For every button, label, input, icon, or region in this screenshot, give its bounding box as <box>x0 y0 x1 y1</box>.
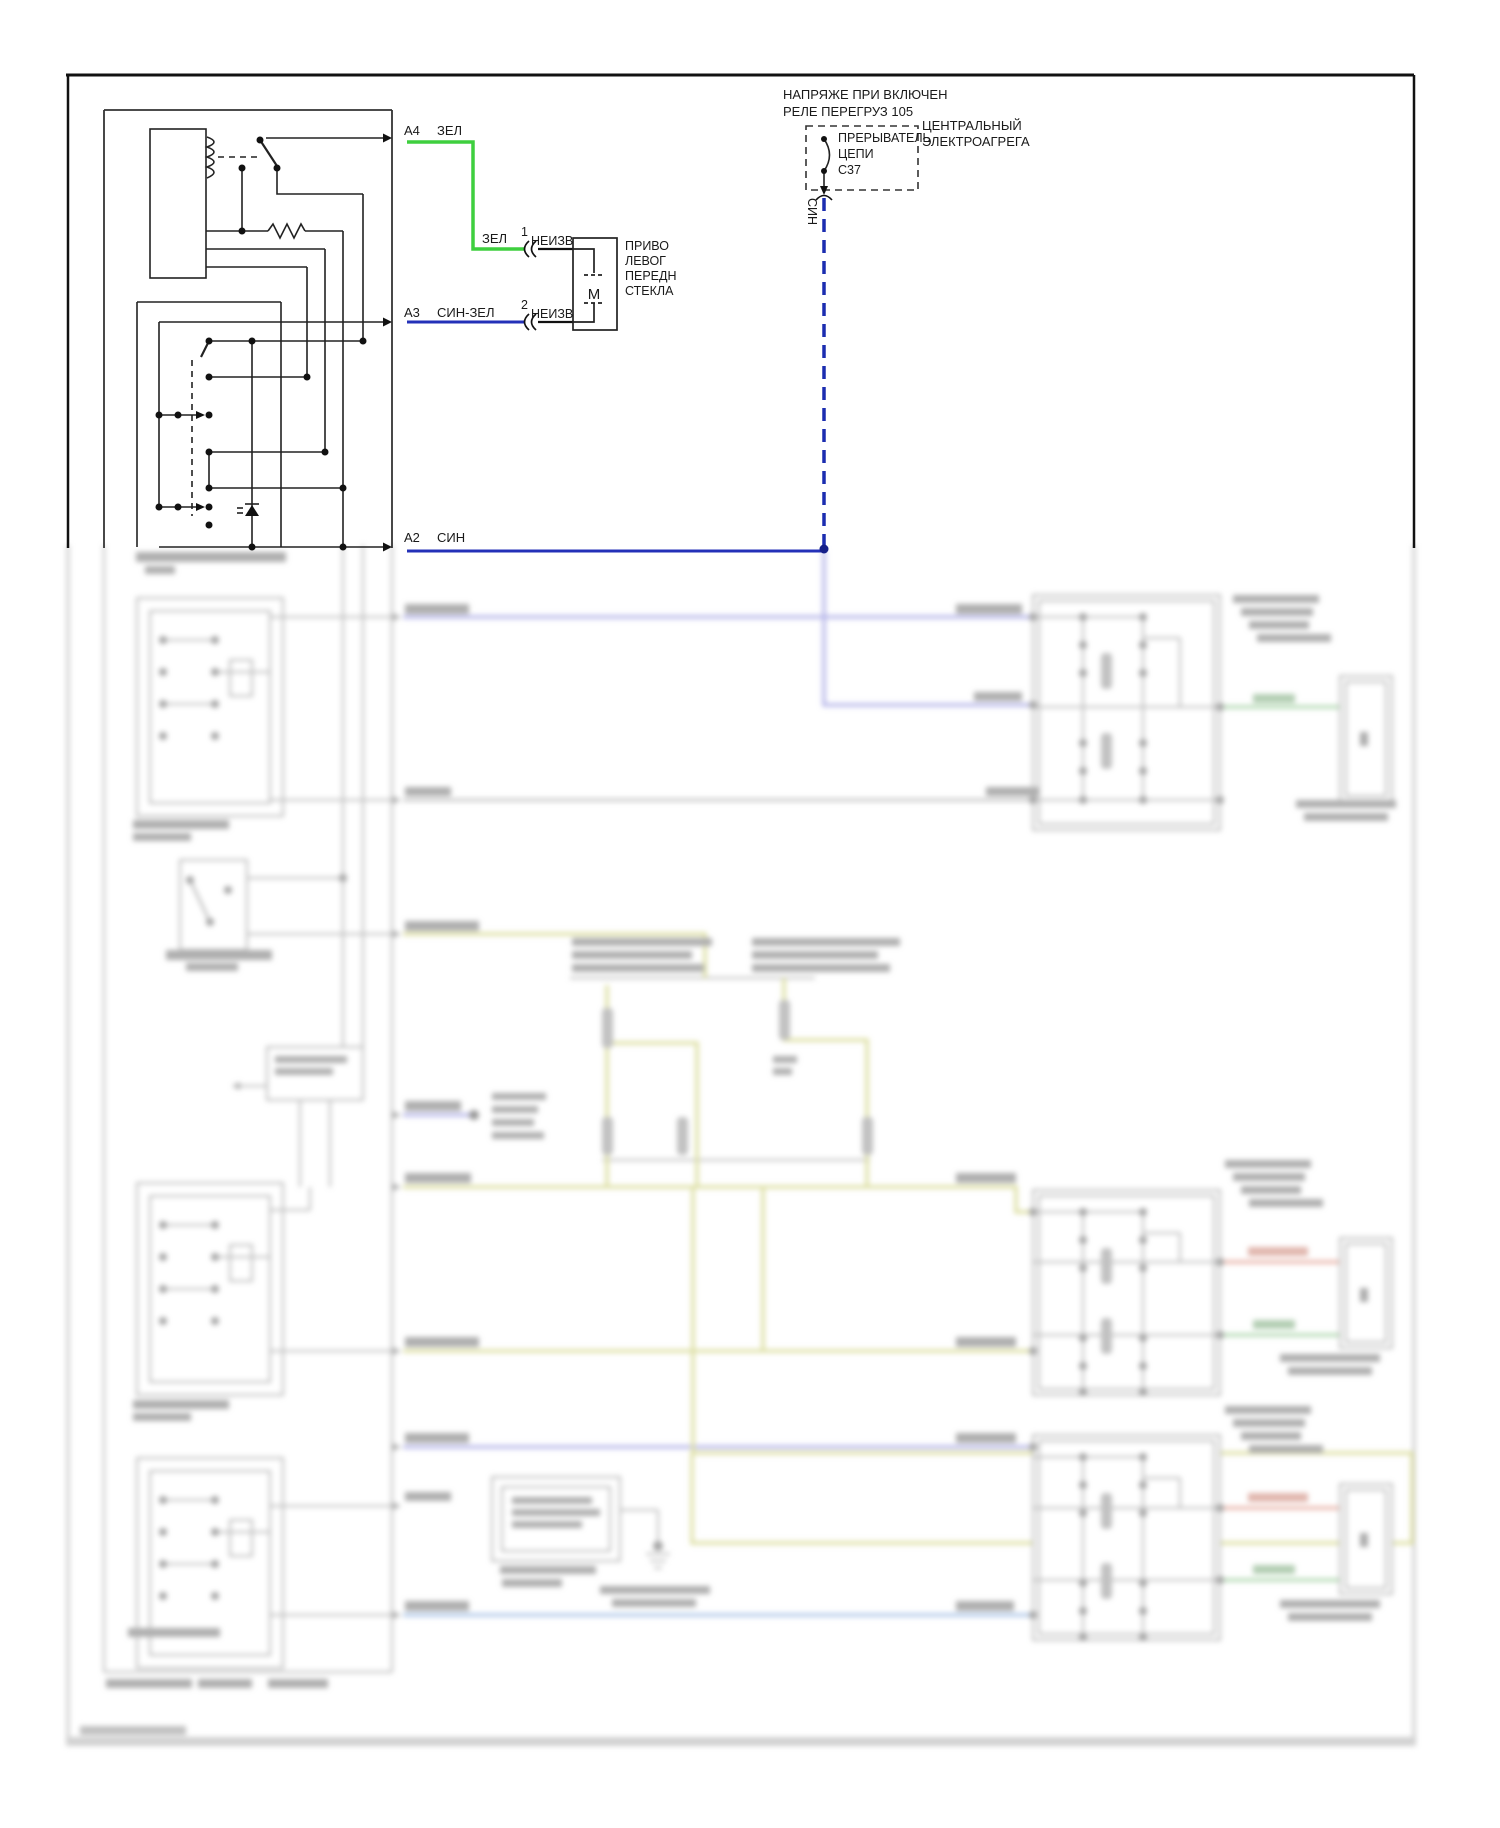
note-line2: РЕЛЕ ПЕРЕГРУЗ 105 <box>783 104 913 119</box>
wire1-name-label: НЕИЗВ <box>531 234 573 248</box>
a3-pin-label: A3 <box>404 305 420 320</box>
wire-junction-dot <box>820 545 829 554</box>
switch-module-box <box>104 110 392 548</box>
motor-letter: M <box>588 286 601 303</box>
sharp-diagram: A4 ЗЕЛ ЗЕЛ 1 НЕИЗВ A3 СИН-ЗЕЛ 2 НЕИЗВ A2… <box>0 0 1500 1828</box>
page-border <box>66 75 1414 548</box>
a4-wire-color-label: ЗЕЛ <box>437 123 462 138</box>
motor-caption-line2: ЛЕВОГ <box>625 254 666 268</box>
wire2-pin-number: 2 <box>521 298 528 312</box>
sin-vertical-label: СИН <box>805 198 819 225</box>
wiring-diagram-page: A4 ЗЕЛ ЗЕЛ 1 НЕИЗВ A3 СИН-ЗЕЛ 2 НЕИЗВ A2… <box>0 0 1500 1828</box>
relay-switch-blade <box>260 140 277 166</box>
motor-caption-line1: ПРИВО <box>625 239 669 253</box>
a3-wire-color-label: СИН-ЗЕЛ <box>437 305 495 320</box>
resistor <box>268 224 305 238</box>
relay-coil <box>207 137 214 178</box>
wire1-color-label: ЗЕЛ <box>482 231 507 246</box>
unit-label-line1: ЦЕНТРАЛЬНЫЙ <box>922 118 1022 133</box>
breaker-label-line2: ЦЕПИ <box>838 147 874 161</box>
a2-wire-color-label: СИН <box>437 530 465 545</box>
a2-pin-label: A2 <box>404 530 420 545</box>
wire1-pin-number: 1 <box>521 225 528 239</box>
motor-caption-line4: СТЕКЛА <box>625 284 674 298</box>
a4-pin-label: A4 <box>404 123 420 138</box>
motor-caption-line3: ПЕРЕДН <box>625 269 677 283</box>
breaker-label-line1: ПРЕРЫВАТЕЛЬ <box>838 131 931 145</box>
wire-a4-green <box>407 142 525 249</box>
switch-module-circuit <box>137 129 383 548</box>
note-line1: НАПРЯЖЕ ПРИ ВКЛЮЧЕН <box>783 87 948 102</box>
unit-label-line2: ЭЛЕКТРОАГРЕГА <box>922 134 1030 149</box>
wire2-name-label: НЕИЗВ <box>531 307 573 321</box>
window-motor <box>573 238 617 330</box>
breaker-id-label: C37 <box>838 163 861 177</box>
